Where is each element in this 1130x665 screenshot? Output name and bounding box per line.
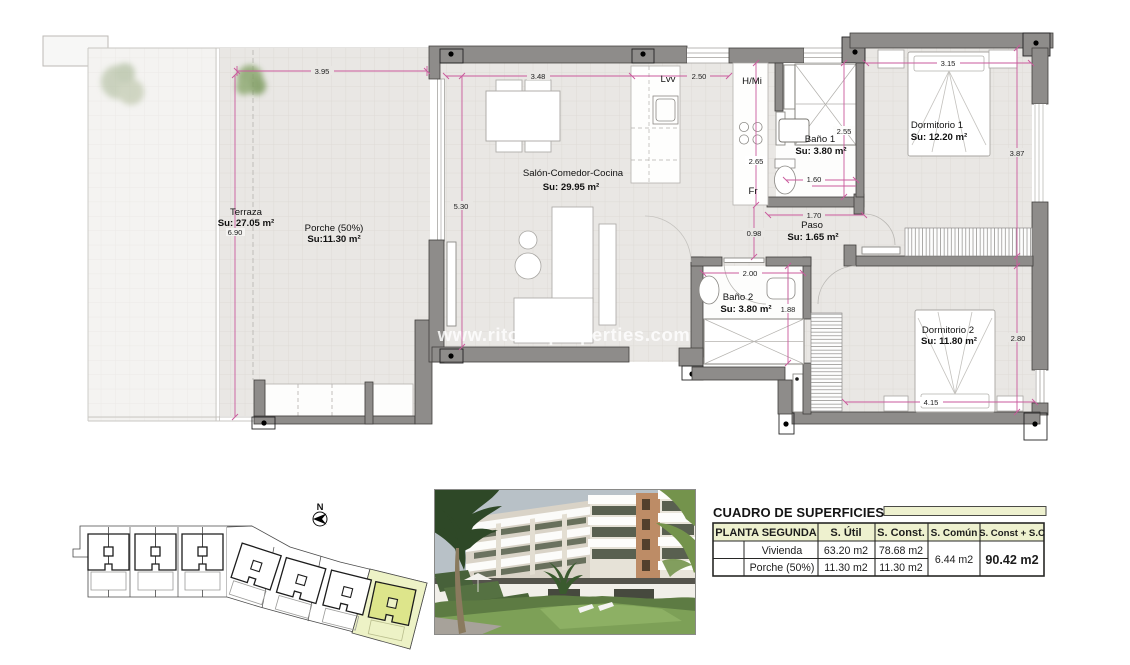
svg-text:6.44 m2: 6.44 m2 <box>935 554 973 566</box>
svg-text:1.70: 1.70 <box>807 211 822 220</box>
svg-text:78.68 m2: 78.68 m2 <box>879 545 923 557</box>
svg-text:2.00: 2.00 <box>743 269 758 278</box>
svg-text:5.30: 5.30 <box>454 202 469 211</box>
svg-text:H/Mi: H/Mi <box>742 76 762 87</box>
svg-text:2.50: 2.50 <box>692 72 707 81</box>
svg-text:S. Útil: S. Útil <box>830 526 861 539</box>
svg-text:Su: 29.95 m²: Su: 29.95 m² <box>543 182 600 193</box>
svg-text:PLANTA SEGUNDA: PLANTA SEGUNDA <box>715 527 817 539</box>
svg-text:1.60: 1.60 <box>807 175 822 184</box>
svg-text:Porche (50%): Porche (50%) <box>305 223 364 234</box>
svg-text:Su: 3.80 m²: Su: 3.80 m² <box>720 304 771 315</box>
svg-text:2.55: 2.55 <box>837 127 852 136</box>
svg-text:Paso: Paso <box>801 220 823 231</box>
svg-text:Dormitorio 2: Dormitorio 2 <box>922 325 974 336</box>
svg-text:S. Const + S.C: S. Const + S.C <box>979 528 1045 539</box>
svg-text:Salón-Comedor-Cocina: Salón-Comedor-Cocina <box>523 168 624 179</box>
svg-text:Su: 3.80 m²: Su: 3.80 m² <box>795 146 846 157</box>
svg-text:3.87: 3.87 <box>1010 149 1025 158</box>
svg-text:Vivienda: Vivienda <box>762 545 803 557</box>
svg-text:Baño 2: Baño 2 <box>723 292 753 303</box>
svg-text:0.98: 0.98 <box>747 229 762 238</box>
svg-text:Baño 1: Baño 1 <box>805 134 835 145</box>
svg-text:Lvv: Lvv <box>661 74 676 85</box>
svg-text:63.20 m2: 63.20 m2 <box>824 545 868 557</box>
svg-text:2.65: 2.65 <box>749 157 764 166</box>
svg-text:3.95: 3.95 <box>315 67 330 76</box>
svg-text:6.90: 6.90 <box>228 228 243 237</box>
svg-text:3.15: 3.15 <box>941 59 956 68</box>
svg-text:2.80: 2.80 <box>1011 334 1026 343</box>
svg-text:Su: 11.80 m²: Su: 11.80 m² <box>921 336 977 347</box>
svg-text:Terraza: Terraza <box>230 207 263 218</box>
svg-text:Su: 12.20 m²: Su: 12.20 m² <box>911 132 968 143</box>
svg-text:N: N <box>317 502 324 513</box>
svg-text:3.48: 3.48 <box>531 72 546 81</box>
svg-text:Porche (50%): Porche (50%) <box>750 562 815 574</box>
svg-text:11.30 m2: 11.30 m2 <box>824 562 867 574</box>
svg-text:90.42 m2: 90.42 m2 <box>985 553 1038 567</box>
svg-text:Fr: Fr <box>748 186 758 197</box>
svg-text:1.88: 1.88 <box>781 305 796 314</box>
svg-text:S. Const.: S. Const. <box>877 527 925 539</box>
svg-text:11.30 m2: 11.30 m2 <box>879 562 922 574</box>
svg-text:S. Común: S. Común <box>931 528 978 539</box>
svg-text:www.ritosolproperties.com: www.ritosolproperties.com <box>437 324 691 345</box>
svg-text:Su:11.30 m²: Su:11.30 m² <box>307 234 360 245</box>
svg-text:CUADRO DE SUPERFICIES: CUADRO DE SUPERFICIES <box>713 505 884 520</box>
svg-text:Dormitorio 1: Dormitorio 1 <box>911 120 963 131</box>
svg-text:Su: 1.65 m²: Su: 1.65 m² <box>787 232 838 243</box>
svg-text:4.15: 4.15 <box>924 398 939 407</box>
svg-text:Su: 27.05 m²: Su: 27.05 m² <box>218 218 275 229</box>
